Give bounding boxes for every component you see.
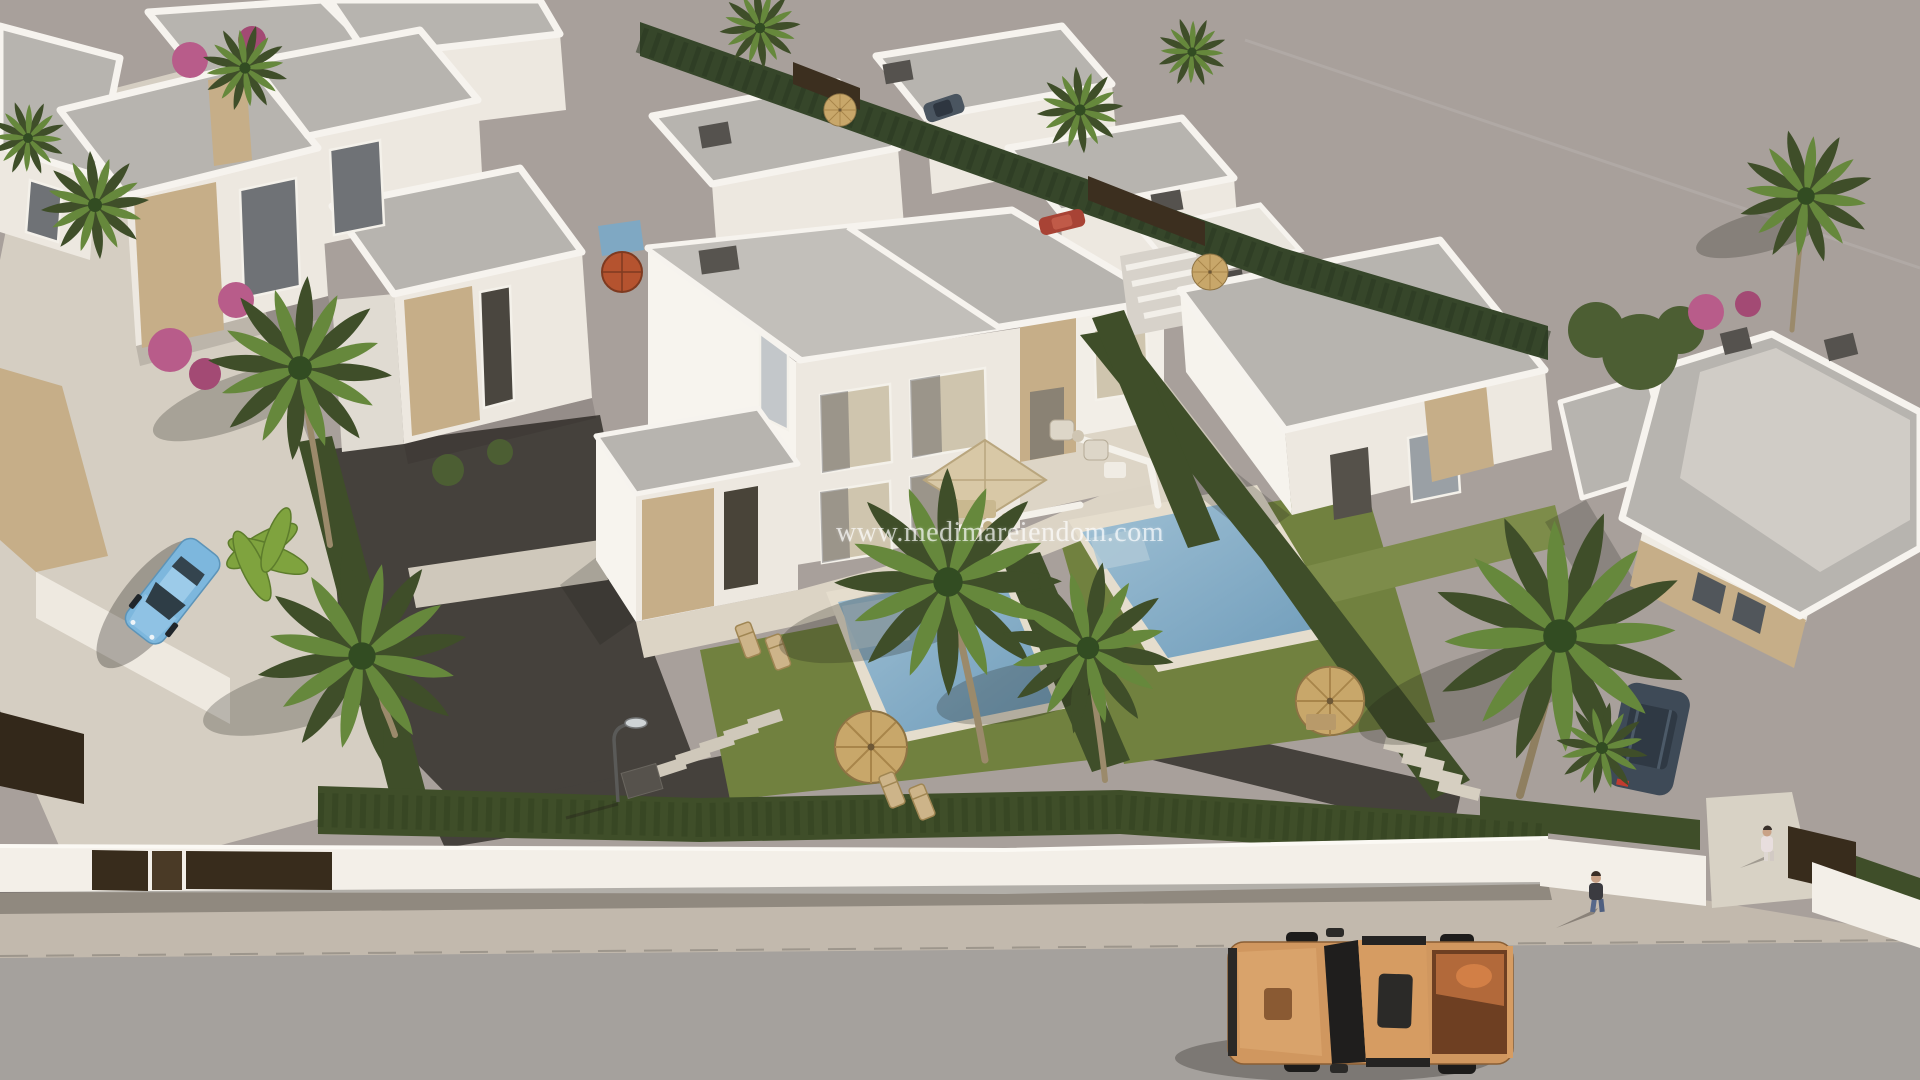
truck-mirror-top	[1326, 928, 1344, 937]
entry-door	[152, 851, 182, 890]
small-pool-glimpse	[598, 220, 644, 256]
truck-sunroof	[1377, 973, 1413, 1028]
truck-grille	[1228, 948, 1237, 1056]
rm-door	[1330, 447, 1372, 520]
render-canvas: www.medimareiendom.com	[0, 0, 1920, 1080]
driveway-gate	[186, 851, 332, 890]
red-parasol	[602, 252, 642, 292]
pedestrian-gate	[92, 850, 148, 891]
rm-porch-chair	[1104, 462, 1126, 478]
straw-parasol-back2	[1192, 254, 1228, 290]
hood-scoop	[1264, 988, 1292, 1020]
annex-stone	[642, 488, 714, 620]
straw-parasol-left	[835, 711, 907, 783]
picnic-table	[1306, 714, 1336, 730]
gates	[92, 850, 332, 891]
road	[0, 938, 1920, 1080]
straw-parasol-back	[824, 94, 856, 126]
pickup-truck	[1228, 928, 1513, 1074]
watermark: www.medimareiendom.com	[836, 517, 1136, 549]
annex-door	[724, 486, 758, 590]
truck-tailgate	[1507, 946, 1513, 1058]
truck-mirror-bottom	[1330, 1064, 1348, 1073]
